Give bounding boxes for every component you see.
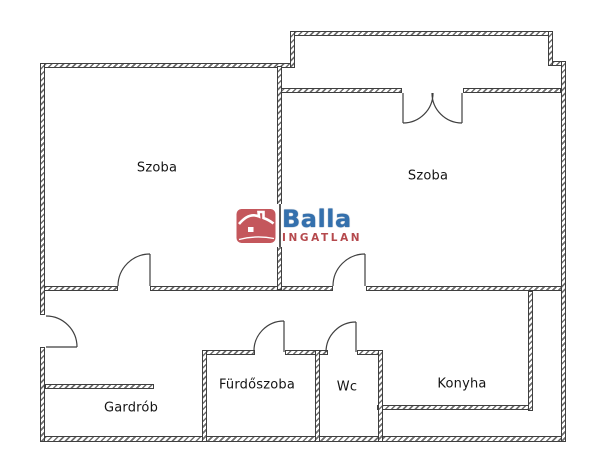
divider-wall-through-logo: [279, 204, 281, 247]
wall-segment: [285, 350, 328, 355]
logo-subtitle-text: INGATLAN: [282, 233, 362, 244]
wall-segment: [366, 286, 566, 291]
room-label-furdoszoba: Fürdőszoba: [219, 378, 295, 393]
wall-segment: [315, 350, 320, 442]
logo-brand-text: Balla: [282, 207, 362, 231]
wall-segment: [378, 350, 383, 442]
wall-segment: [528, 291, 533, 411]
wall-segment: [290, 31, 295, 68]
wall-segment: [45, 384, 154, 389]
wall-segment: [548, 31, 553, 66]
wall-segment: [40, 286, 118, 291]
wall-segment: [40, 63, 294, 68]
wall-segment: [278, 88, 402, 93]
wall-segment: [377, 405, 533, 410]
wall-segment: [463, 88, 561, 93]
entry-door-swing-arc: [46, 316, 77, 347]
wall-segment: [40, 436, 566, 442]
room-label-konyha: Konyha: [437, 377, 486, 392]
balcony-door-right-swing-arc: [432, 93, 462, 123]
balcony-door-left-swing-arc: [403, 93, 433, 123]
wall-segment: [561, 61, 566, 442]
room-label-szoba-1: Szoba: [137, 161, 177, 176]
furdoszoba-door-swing-arc: [254, 321, 284, 352]
wall-segment: [202, 350, 255, 355]
floorplan-canvas: SzobaSzobaGardróbFürdőszobaWcKonyha Ball…: [0, 0, 600, 450]
room-label-wc: Wc: [337, 380, 357, 395]
balla-ingatlan-logo: Balla INGATLAN: [236, 204, 365, 247]
wall-segment: [150, 286, 333, 291]
wall-segment: [202, 350, 207, 442]
wc-door-swing-arc: [326, 322, 356, 352]
wall-segment: [290, 31, 553, 36]
wall-segment: [40, 347, 45, 442]
room-label-gardrob: Gardrób: [104, 401, 158, 416]
logo-house-icon: [236, 208, 276, 244]
logo-text-block: Balla INGATLAN: [282, 207, 362, 244]
wall-segment: [40, 63, 45, 315]
szoba1-door-swing-arc: [118, 254, 150, 286]
wall-segment: [277, 66, 282, 290]
szoba2-door-swing-arc: [333, 254, 365, 286]
logo-window-square: [248, 227, 254, 232]
room-label-szoba-2: Szoba: [408, 169, 448, 184]
